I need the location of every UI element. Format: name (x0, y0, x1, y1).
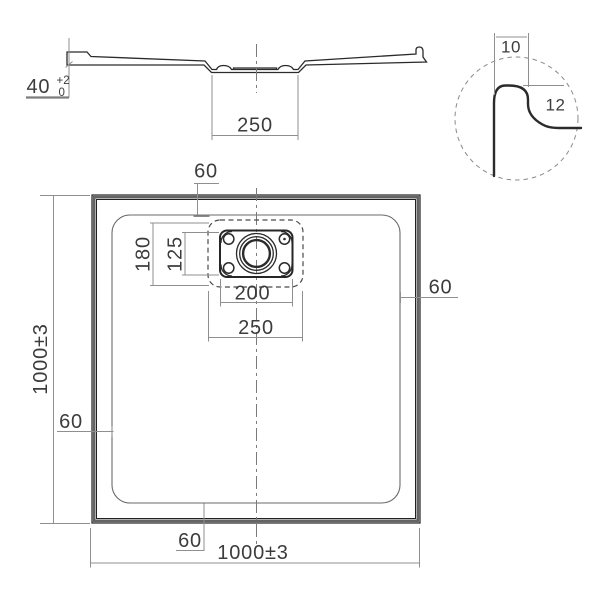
bolt-hole (224, 263, 234, 273)
detail-boundary-circle (455, 57, 578, 180)
dim-section-height: 40 +2 0 (26, 38, 73, 99)
dim-label-overall-height: 1000±3 (30, 323, 52, 394)
bolt-hole-center-dot (283, 238, 286, 241)
dim-label-border-offset-left: 60 (59, 411, 83, 433)
dim-label-tol-minus: 0 (59, 87, 65, 99)
dim-section-recess-width: 250 (212, 75, 298, 140)
section-shell-hatched (67, 47, 427, 73)
plan-view: 180 125 200 250 60 (30, 161, 458, 568)
dim-label-tol-plus: +2 (57, 75, 70, 87)
bolt-hole (224, 234, 234, 244)
dim-label-drain-recess-width: 250 (238, 317, 274, 339)
dim-label-border-offset-right: 60 (429, 277, 453, 299)
shower-tray-drawing: 40 +2 0 250 10 12 (0, 0, 600, 600)
dim-label-flange-height: 125 (165, 236, 187, 272)
edge-lip-profile (494, 86, 581, 177)
dim-label-border-offset-bottom: 60 (178, 530, 202, 552)
dim-label-border-offset-top: 60 (194, 161, 218, 183)
dim-label-section-recess-width: 250 (237, 115, 273, 137)
bolt-hole (279, 263, 289, 273)
dim-label-overall-width: 1000±3 (217, 542, 288, 564)
dim-label-drain-recess-height: 180 (133, 236, 155, 272)
dim-overall-height: 1000±3 (30, 196, 90, 524)
dim-label-lip-width: 10 (501, 38, 521, 57)
technical-drawing-canvas: 40 +2 0 250 10 12 (0, 0, 600, 600)
section-view: 40 +2 0 250 (26, 38, 427, 140)
detail-view: 10 12 (455, 33, 581, 180)
dim-overall-width: 1000±3 (91, 528, 420, 568)
dim-label-lip-height: 12 (545, 96, 565, 115)
dim-label-flange-width: 200 (235, 283, 271, 305)
dim-label-section-height: 40 (27, 76, 51, 98)
